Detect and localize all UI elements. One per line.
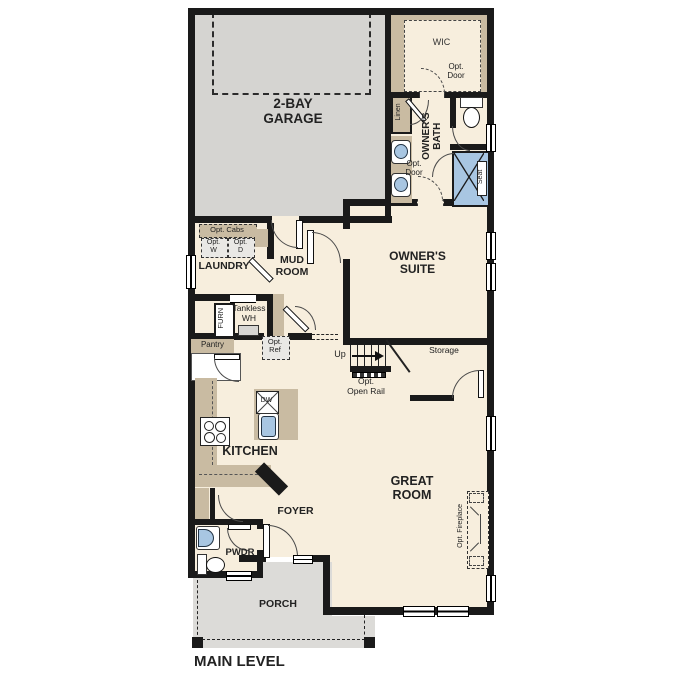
fireplace-bay: [480, 514, 481, 544]
porch-post: [192, 637, 203, 648]
wall: [450, 95, 456, 128]
room-label-owners-suite: OWNER'S SUITE: [375, 250, 460, 277]
wall: [323, 555, 330, 611]
label-opt-fireplace: Opt. Fireplace: [457, 496, 465, 556]
label-opt-ref: Opt. Ref: [262, 338, 288, 355]
room-label-great-room: GREAT ROOM: [368, 474, 456, 502]
foyer-closet: [195, 488, 209, 519]
porch-floor: [193, 578, 263, 648]
sink-bowl: [394, 177, 408, 192]
porch-dashed-edge: [197, 639, 365, 641]
label-dishwasher: DW: [256, 397, 277, 405]
mudroom-bench: [255, 229, 268, 247]
wall: [288, 333, 312, 340]
room-label-storage: Storage: [422, 346, 466, 356]
window: [486, 124, 496, 152]
fireplace-corner: [469, 493, 484, 503]
fireplace-corner: [469, 556, 484, 566]
room-label-foyer: FOYER: [268, 506, 323, 518]
wall: [343, 259, 350, 345]
room-label-laundry: LAUNDRY: [194, 261, 254, 273]
window: [226, 571, 252, 581]
label-wic-opt-door: Opt. Door: [440, 63, 472, 81]
wall: [188, 519, 263, 525]
wall: [343, 199, 350, 229]
window: [486, 263, 496, 291]
floor-plan: WIC Opt. Door Linen Seat OWNER'S BATH Op…: [0, 0, 687, 687]
label-bath-opt-door: Opt. Door: [398, 160, 430, 178]
stair-direction-arrow: [352, 355, 376, 357]
label-up: Up: [330, 349, 350, 359]
wall: [210, 488, 215, 520]
wall: [343, 338, 494, 345]
wic-shelf-outline: [404, 20, 481, 92]
wall: [188, 8, 195, 578]
label-furnace: FURN: [217, 302, 225, 334]
wall: [343, 199, 391, 206]
toilet-bowl: [206, 557, 225, 573]
label-seat: Seat: [477, 162, 485, 192]
room-label-porch: PORCH: [248, 599, 308, 611]
burner: [204, 421, 214, 431]
burner: [204, 432, 215, 443]
room-label-linen: Linen: [395, 95, 403, 129]
porch-dashed-edge: [197, 580, 199, 640]
garage-door-dashed-outline: [212, 12, 371, 95]
stair-arrow-head: [375, 351, 384, 361]
window: [486, 416, 496, 451]
wall: [410, 395, 454, 401]
burner: [216, 433, 226, 443]
room-label-mud-room: MUD ROOM: [270, 255, 314, 279]
mudroom-closet: [273, 294, 284, 340]
label-opt-cabs: Opt. Cabs: [199, 226, 255, 234]
burner: [215, 421, 226, 432]
window: [486, 232, 496, 260]
label-opt-open-rail: Opt. Open Rail: [338, 377, 394, 396]
page-title: MAIN LEVEL: [194, 654, 354, 671]
wall: [188, 8, 494, 15]
room-label-owners-bath: OWNER'S BATH: [421, 104, 443, 168]
room-label-pwdr: PWDR: [222, 548, 258, 559]
window: [486, 575, 496, 602]
toilet-bowl: [463, 107, 480, 128]
counter-dashed-line: [199, 474, 263, 476]
wall: [188, 294, 270, 301]
room-label-garage: 2-BAY GARAGE: [240, 96, 346, 126]
cooktop-icon: [200, 417, 230, 446]
water-heater: [238, 325, 259, 336]
window: [186, 255, 196, 289]
opt-opening-dashed: [312, 334, 338, 340]
sink-basin: [261, 416, 276, 437]
great-room-floor: [330, 557, 487, 608]
room-label-kitchen: KITCHEN: [215, 444, 285, 458]
window: [293, 555, 313, 564]
room-label-wic: WIC: [404, 37, 479, 47]
window: [437, 606, 469, 617]
sink-bowl: [394, 144, 408, 159]
room-label-pantry: Pantry: [191, 341, 234, 350]
label-tankless-wh: Tankless WH: [228, 304, 270, 323]
label-opt-washer: Opt. W: [201, 239, 226, 255]
label-opt-dryer: Opt. D: [228, 239, 253, 255]
window: [403, 606, 435, 617]
porch-post: [364, 637, 375, 648]
cased-opening: [230, 294, 256, 303]
